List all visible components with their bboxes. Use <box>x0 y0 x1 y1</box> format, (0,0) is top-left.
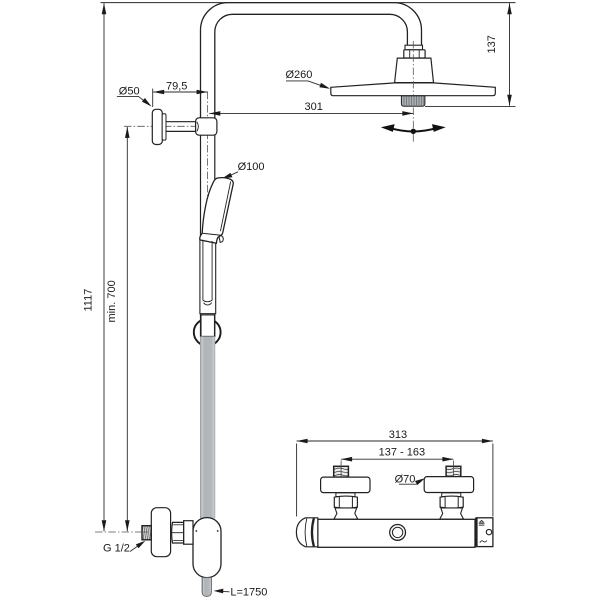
svg-text:L=1750: L=1750 <box>230 586 267 598</box>
svg-text:G 1/2: G 1/2 <box>103 543 130 555</box>
svg-text:Ø50: Ø50 <box>119 86 140 98</box>
svg-text:1117: 1117 <box>83 289 95 312</box>
svg-text:min. 700: min. 700 <box>106 280 118 322</box>
svg-text:137 - 163: 137 - 163 <box>379 447 425 459</box>
svg-text:79,5: 79,5 <box>166 80 187 92</box>
svg-text:Ø100: Ø100 <box>238 161 265 173</box>
svg-text:Ø260: Ø260 <box>286 69 313 81</box>
svg-text:313: 313 <box>389 429 407 441</box>
svg-text:Ø70: Ø70 <box>395 473 416 485</box>
svg-text:301: 301 <box>305 101 323 113</box>
svg-text:137: 137 <box>486 35 498 53</box>
